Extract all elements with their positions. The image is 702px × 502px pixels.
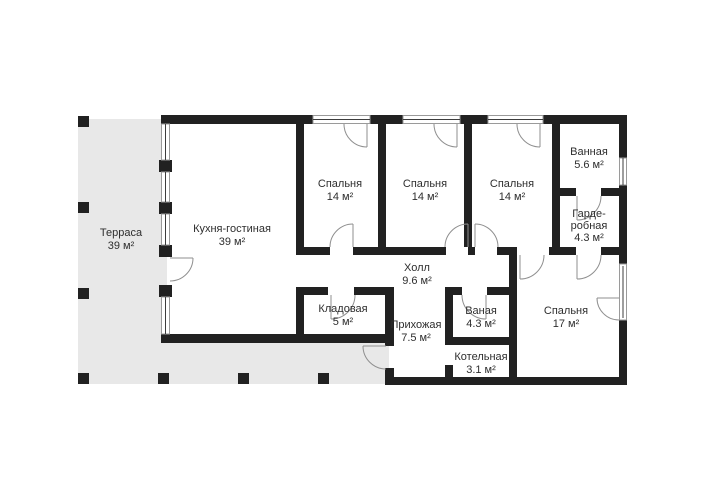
- window: [403, 116, 460, 124]
- label-kitchen-area: 39 м²: [219, 236, 246, 248]
- wall: [619, 185, 627, 264]
- wall: [445, 287, 462, 295]
- door: [597, 298, 619, 320]
- door: [475, 224, 498, 247]
- label-hall-area: 9.6 м²: [402, 275, 432, 287]
- window: [620, 264, 627, 320]
- wall: [385, 368, 394, 377]
- label-boiler-area: 3.1 м²: [466, 364, 496, 376]
- label-terrace-name: Терраса: [100, 227, 143, 239]
- wall: [468, 247, 475, 255]
- wall: [552, 124, 560, 247]
- post: [158, 373, 169, 384]
- wall: [296, 287, 304, 334]
- wall: [354, 287, 394, 295]
- post: [78, 373, 89, 384]
- wall: [445, 365, 453, 377]
- label-bathroom-name: Ванная: [570, 146, 608, 158]
- label-entry-area: 7.5 м²: [401, 332, 431, 344]
- wall: [161, 334, 394, 343]
- wall: [543, 115, 627, 124]
- wall: [161, 115, 313, 124]
- wall-pier: [159, 202, 172, 214]
- window: [162, 172, 170, 202]
- label-bathroom-area: 5.6 м²: [574, 159, 604, 171]
- wall: [445, 295, 453, 337]
- door: [517, 124, 540, 147]
- wall: [378, 124, 386, 247]
- post: [78, 288, 89, 299]
- wall: [509, 255, 517, 377]
- wall: [296, 124, 304, 255]
- post: [318, 373, 329, 384]
- label-wardrobe-area: 4.3 м²: [574, 232, 604, 244]
- wall: [385, 377, 627, 385]
- wall: [370, 115, 403, 124]
- label-bedroom4-area: 17 м²: [553, 318, 580, 330]
- door: [170, 258, 193, 281]
- wall: [353, 247, 446, 255]
- door: [577, 255, 601, 279]
- window: [313, 116, 370, 124]
- label-bedroom4-name: Спальня: [544, 305, 588, 317]
- door: [344, 124, 367, 147]
- wall-pier: [159, 160, 172, 172]
- door: [434, 124, 457, 147]
- label-bedroom1-name: Спальня: [318, 178, 362, 190]
- label-storage-area: 5 м²: [333, 316, 354, 328]
- label-bedroom2-area: 14 м²: [412, 191, 439, 203]
- door: [330, 224, 353, 247]
- window: [620, 158, 627, 185]
- wall: [619, 320, 627, 377]
- label-entry-name: Прихожая: [391, 319, 442, 331]
- wall: [619, 124, 627, 158]
- window: [162, 124, 170, 160]
- wall: [460, 115, 488, 124]
- floor-plan-svg: Терраса 39 м² Кухня-гостиная 39 м² Спаль…: [0, 0, 702, 502]
- label-bedroom2-name: Спальня: [403, 178, 447, 190]
- label-bedroom1-area: 14 м²: [327, 191, 354, 203]
- label-boiler-name: Котельная: [454, 351, 507, 363]
- door: [520, 255, 544, 279]
- label-wardrobe-name1: Гарде-: [572, 208, 606, 220]
- label-bedroom3-area: 14 м²: [499, 191, 526, 203]
- wall: [445, 337, 517, 345]
- label-terrace-area: 39 м²: [108, 240, 135, 252]
- window: [488, 116, 543, 124]
- post: [78, 116, 89, 127]
- window: [162, 214, 170, 245]
- window: [162, 297, 170, 334]
- label-storage-name: Кладовая: [318, 303, 367, 315]
- wall: [497, 247, 517, 255]
- label-bath-small-area: 4.3 м²: [466, 318, 496, 330]
- label-bath-small-name: Ваная: [465, 305, 497, 317]
- floor-plan: Терраса 39 м² Кухня-гостиная 39 м² Спаль…: [0, 0, 702, 502]
- label-kitchen-name: Кухня-гостиная: [193, 223, 271, 235]
- post: [78, 202, 89, 213]
- wall: [549, 247, 576, 255]
- wall-pier: [159, 285, 172, 297]
- label-bedroom3-name: Спальня: [490, 178, 534, 190]
- label-wardrobe-name2: робная: [571, 220, 608, 232]
- wall-pier: [159, 245, 172, 257]
- label-hall-name: Холл: [404, 262, 430, 274]
- post: [238, 373, 249, 384]
